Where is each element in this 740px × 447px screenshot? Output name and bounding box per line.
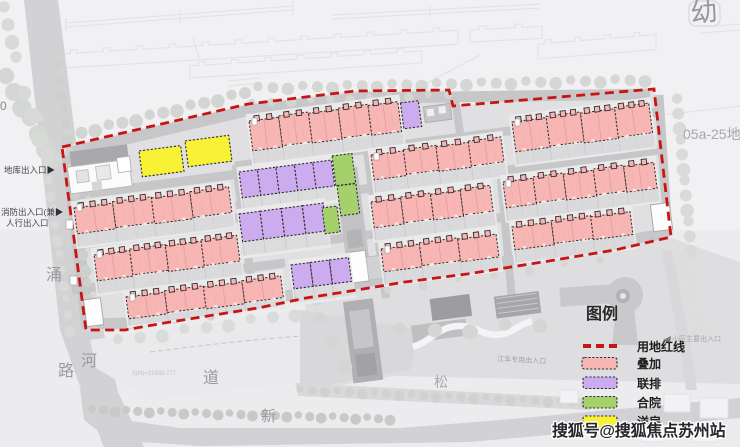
svg-text:叠加: 叠加 — [637, 356, 661, 371]
svg-text:人行出入口: 人行出入口 — [6, 218, 49, 228]
svg-text:X(N)=21659.777: X(N)=21659.777 — [132, 371, 177, 377]
svg-text:05a-25地: 05a-25地 — [683, 126, 740, 142]
svg-text:河: 河 — [81, 352, 97, 370]
svg-text:用地红线: 用地红线 — [636, 339, 685, 354]
svg-text:新: 新 — [261, 408, 276, 425]
svg-text:合院: 合院 — [637, 395, 661, 410]
svg-text:联排: 联排 — [637, 376, 661, 391]
svg-text:0: 0 — [0, 99, 7, 113]
svg-text:幼: 幼 — [689, 0, 719, 28]
svg-text:搜狐号@搜狐焦点苏州站: 搜狐号@搜狐焦点苏州站 — [552, 421, 726, 440]
svg-text:涌: 涌 — [46, 266, 62, 284]
svg-text:道: 道 — [203, 369, 219, 387]
svg-text:图例: 图例 — [586, 304, 618, 323]
svg-text:松: 松 — [434, 374, 448, 390]
svg-text:地库出入口▶: 地库出入口▶ — [4, 165, 55, 175]
svg-text:消防出入口(兼▶: 消防出入口(兼▶ — [1, 207, 63, 217]
svg-text:路: 路 — [58, 362, 74, 380]
